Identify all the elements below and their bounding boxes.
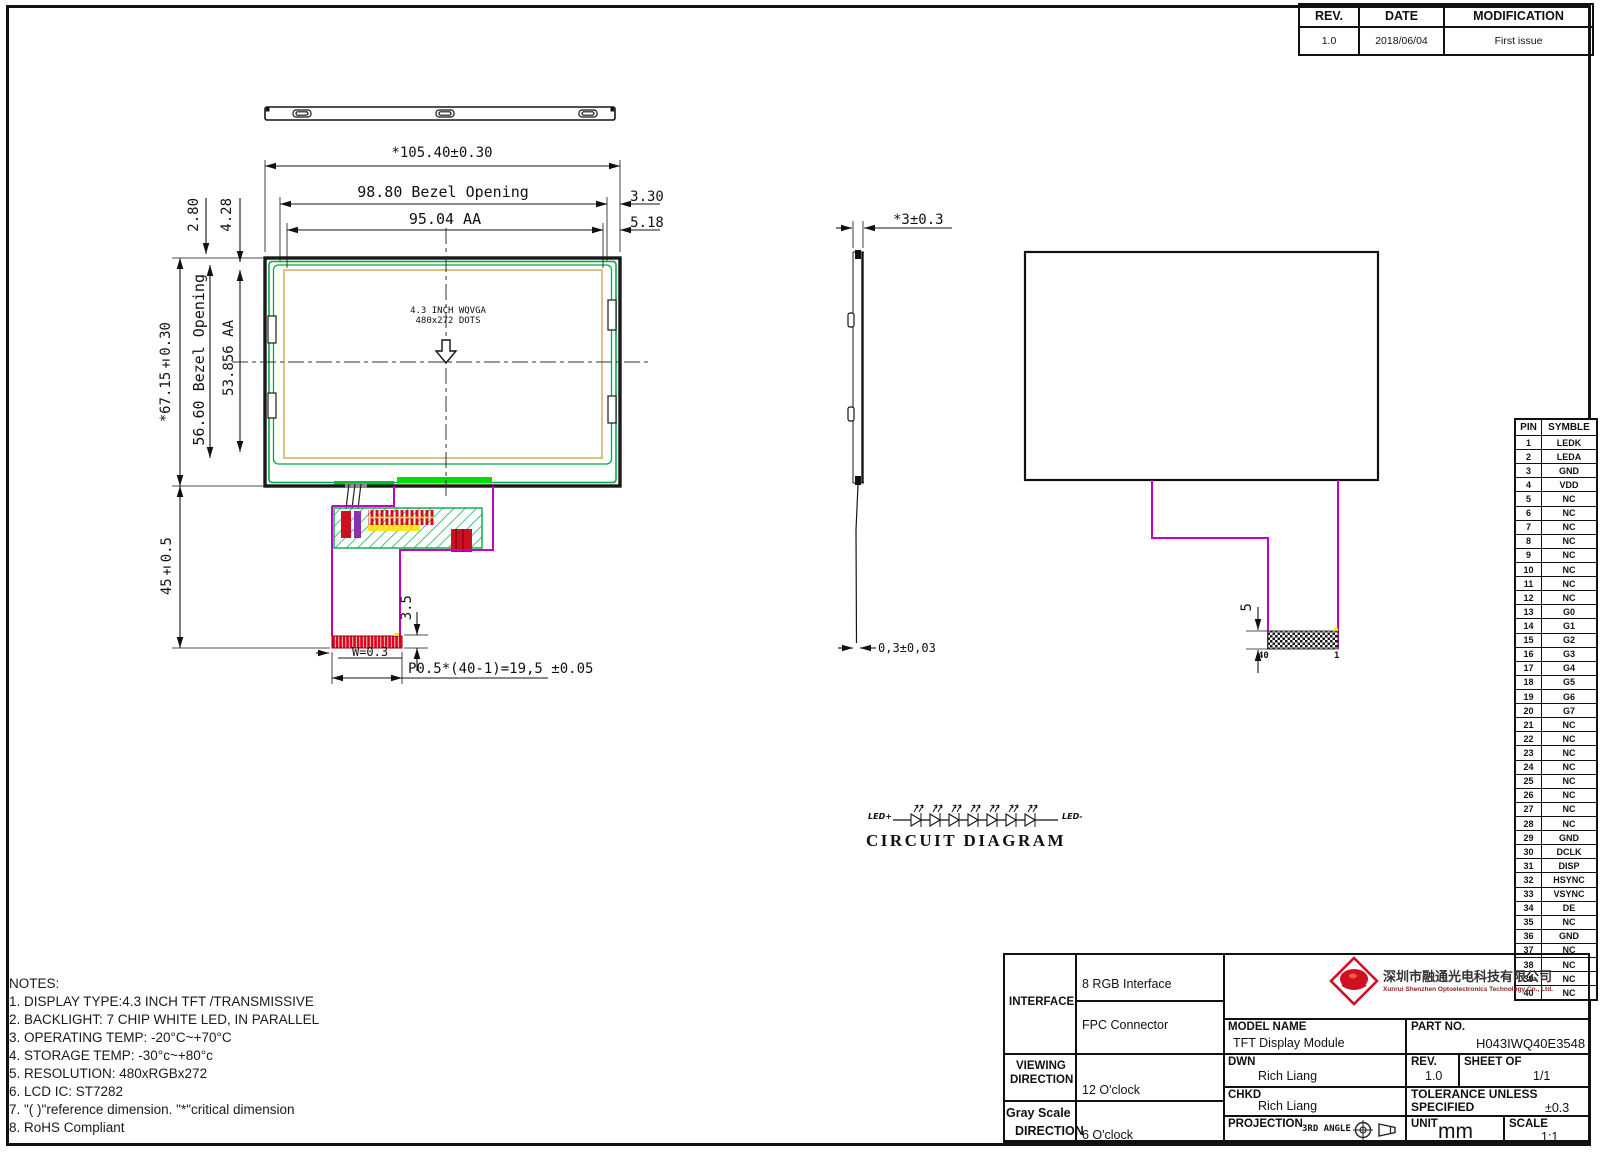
pin-row: 30DCLK bbox=[1516, 844, 1596, 858]
pin-row: 11NC bbox=[1516, 576, 1596, 590]
circuit-diagram-title: CIRCUIT DIAGRAM bbox=[866, 831, 1066, 851]
scale-value: 1:1 bbox=[1541, 1130, 1558, 1144]
revision-table: REV. DATE MODIFICATION 1.0 2018/06/04 Fi… bbox=[1298, 3, 1594, 56]
pin-number: 8 bbox=[1516, 535, 1542, 548]
interface-value-1: 8 RGB Interface bbox=[1082, 977, 1172, 991]
dim-bezel-width: 98.80 Bezel Opening bbox=[357, 183, 529, 201]
pin-number: 5 bbox=[1516, 492, 1542, 505]
pin-number: 20 bbox=[1516, 704, 1542, 717]
symble-col-header: SYMBLE bbox=[1542, 420, 1596, 435]
rev-value: 1.0 bbox=[1300, 28, 1360, 54]
pin-row: 28NC bbox=[1516, 816, 1596, 830]
pin-number: 1 bbox=[1516, 436, 1542, 449]
company-logo bbox=[1328, 955, 1380, 1007]
dim-fpc-tail: 3.5 bbox=[399, 595, 415, 620]
led-icon bbox=[930, 814, 940, 826]
pin-number: 26 bbox=[1516, 789, 1542, 802]
pin-symbol: VSYNC bbox=[1542, 888, 1596, 901]
pin-symbol: VDD bbox=[1542, 478, 1596, 491]
pin-symbol: G1 bbox=[1542, 619, 1596, 632]
pin-number: 30 bbox=[1516, 845, 1542, 858]
pin-row: 22NC bbox=[1516, 731, 1596, 745]
unit-label: UNIT bbox=[1411, 1118, 1438, 1130]
pin-row: 36GND bbox=[1516, 929, 1596, 943]
pin-number: 11 bbox=[1516, 577, 1542, 590]
dim-left-top: 2.80 bbox=[186, 198, 202, 232]
pin-symbol: G7 bbox=[1542, 704, 1596, 717]
pin-row: 23NC bbox=[1516, 745, 1596, 759]
pin-row: 27NC bbox=[1516, 802, 1596, 816]
pin-number: 25 bbox=[1516, 775, 1542, 788]
third-angle-projection-icon bbox=[1352, 1119, 1398, 1141]
tolerance-label-2: SPECIFIED bbox=[1411, 1100, 1474, 1114]
date-header: DATE bbox=[1360, 5, 1445, 28]
modification-value: First issue bbox=[1445, 28, 1592, 54]
interface-label: INTERFACE bbox=[1009, 996, 1074, 1008]
note-item: 7. "( )"reference dimension. "*"critical… bbox=[9, 1102, 319, 1120]
pin-row: 33VSYNC bbox=[1516, 887, 1596, 901]
pin-row: 9NC bbox=[1516, 548, 1596, 562]
tb-line bbox=[1003, 1053, 1590, 1055]
front-view bbox=[232, 228, 652, 500]
pin-row: 17G4 bbox=[1516, 661, 1596, 675]
pin-number: 22 bbox=[1516, 732, 1542, 745]
pin-symbol: NC bbox=[1542, 817, 1596, 830]
tb-line bbox=[1223, 953, 1225, 1146]
pin-number: 19 bbox=[1516, 690, 1542, 703]
part-no-value: H043IWQ40E3548 bbox=[1476, 1036, 1585, 1051]
tb-line bbox=[1075, 1000, 1225, 1002]
part-no-label: PART NO. bbox=[1411, 1021, 1465, 1033]
pin-row: 16G3 bbox=[1516, 647, 1596, 661]
dim-aa-width: 95.04 AA bbox=[409, 210, 481, 228]
chkd-label: CHKD bbox=[1228, 1089, 1261, 1101]
dim-right-top: 3.30 bbox=[630, 189, 664, 205]
led-icon bbox=[987, 814, 997, 826]
pin-number: 15 bbox=[1516, 634, 1542, 647]
pin-symbol: G5 bbox=[1542, 676, 1596, 689]
pin-symbol: LEDA bbox=[1542, 450, 1596, 463]
pin-row: 13G0 bbox=[1516, 604, 1596, 618]
model-name-value: TFT Display Module bbox=[1233, 1036, 1345, 1050]
dwn-label: DWN bbox=[1228, 1056, 1255, 1068]
pin-number: 36 bbox=[1516, 930, 1542, 943]
pin-number: 21 bbox=[1516, 718, 1542, 731]
tb-line bbox=[1003, 1100, 1225, 1102]
pin-row: 1LEDK bbox=[1516, 435, 1596, 449]
pin-symbol: NC bbox=[1542, 775, 1596, 788]
pin-number: 29 bbox=[1516, 831, 1542, 844]
back-pin-right-label: 1 bbox=[1334, 651, 1339, 661]
pin-symbol: NC bbox=[1542, 803, 1596, 816]
pin-number: 9 bbox=[1516, 549, 1542, 562]
tb-line bbox=[1223, 1115, 1590, 1117]
note-item: 4. STORAGE TEMP: -30°c~+80°c bbox=[9, 1048, 319, 1066]
pin-row: 31DISP bbox=[1516, 858, 1596, 872]
pin-number: 13 bbox=[1516, 605, 1542, 618]
gray-scale-label-1: Gray Scale bbox=[1006, 1106, 1071, 1120]
note-item: 2. BACKLIGHT: 7 CHIP WHITE LED, IN PARAL… bbox=[9, 1012, 319, 1030]
led-icon bbox=[1025, 814, 1035, 826]
pin-number: 3 bbox=[1516, 464, 1542, 477]
circuit-diagram bbox=[893, 805, 1058, 827]
notes-title: NOTES: bbox=[9, 976, 319, 994]
interface-value-2: FPC Connector bbox=[1082, 1018, 1168, 1032]
pin-table-header: PIN SYMBLE bbox=[1516, 420, 1596, 435]
pin-symbol: NC bbox=[1542, 916, 1596, 929]
aa-label-line1: 4.3 INCH WQVGA bbox=[410, 306, 486, 316]
dim-aa-height: 53.856 AA bbox=[221, 320, 237, 396]
led-symbols bbox=[911, 805, 1037, 827]
pin-symbol: DCLK bbox=[1542, 845, 1596, 858]
gray-scale-label-2: DIRECTION bbox=[1015, 1124, 1084, 1138]
dim-bezel-height: 56.60 Bezel Opening bbox=[190, 274, 208, 446]
tb-line bbox=[1223, 1018, 1590, 1020]
pin-symbol: GND bbox=[1542, 930, 1596, 943]
led-icon bbox=[949, 814, 959, 826]
pin-symbol: LEDK bbox=[1542, 436, 1596, 449]
date-value: 2018/06/04 bbox=[1360, 28, 1445, 54]
pin-number: 7 bbox=[1516, 521, 1542, 534]
viewing-direction-label-2: DIRECTION bbox=[1010, 1074, 1073, 1086]
pin-symbol: HSYNC bbox=[1542, 873, 1596, 886]
dim-width-total: *105.40±0.30 bbox=[391, 145, 492, 161]
pin-symbol: NC bbox=[1542, 507, 1596, 520]
rev-header: REV. bbox=[1300, 5, 1360, 28]
pin-symbol: G3 bbox=[1542, 648, 1596, 661]
pin-row: 14G1 bbox=[1516, 618, 1596, 632]
dim-fpc-width: W=0.3 bbox=[352, 645, 388, 659]
fpc-front bbox=[332, 484, 493, 648]
pin-row: 12NC bbox=[1516, 590, 1596, 604]
pin-symbol: NC bbox=[1542, 789, 1596, 802]
pin-row: 3GND bbox=[1516, 463, 1596, 477]
top-view bbox=[265, 107, 615, 120]
pin-row: 25NC bbox=[1516, 774, 1596, 788]
tolerance-value: ±0.3 bbox=[1545, 1101, 1569, 1115]
dim-height-total: *67.15±0.30 bbox=[158, 322, 174, 422]
pin-number: 35 bbox=[1516, 916, 1542, 929]
pin-symbol: GND bbox=[1542, 464, 1596, 477]
pin-row: 2LEDA bbox=[1516, 449, 1596, 463]
pin-symbol: NC bbox=[1542, 535, 1596, 548]
pin-row: 32HSYNC bbox=[1516, 872, 1596, 886]
pin-row: 7NC bbox=[1516, 520, 1596, 534]
modification-header: MODIFICATION bbox=[1445, 5, 1592, 28]
dim-fpc-thickness: 0,3±0,03 bbox=[878, 641, 936, 655]
led-minus-label: LED- bbox=[1062, 812, 1083, 821]
pin-number: 4 bbox=[1516, 478, 1542, 491]
pin-row: 29GND bbox=[1516, 830, 1596, 844]
pin-symbol: DISP bbox=[1542, 859, 1596, 872]
pin-symbol: NC bbox=[1542, 732, 1596, 745]
pin-row: 15G2 bbox=[1516, 633, 1596, 647]
back-view bbox=[1025, 252, 1378, 673]
pin-row: 21NC bbox=[1516, 717, 1596, 731]
dwn-value: Rich Liang bbox=[1258, 1069, 1317, 1083]
note-item: 8. RoHS Compliant bbox=[9, 1120, 319, 1138]
tb-line bbox=[1075, 953, 1077, 1146]
dim-fpc-pitch: P0.5*(40-1)=19,5 ±0.05 bbox=[408, 661, 593, 677]
pin-row: 18G5 bbox=[1516, 675, 1596, 689]
pin-number: 12 bbox=[1516, 591, 1542, 604]
dim-fpc-length: 45±0.5 bbox=[159, 537, 175, 595]
pin-number: 16 bbox=[1516, 648, 1542, 661]
pin-symbol: NC bbox=[1542, 746, 1596, 759]
notes-block: NOTES: 1. DISPLAY TYPE:4.3 INCH TFT /TRA… bbox=[9, 976, 319, 1138]
pin-number: 14 bbox=[1516, 619, 1542, 632]
pin-number: 18 bbox=[1516, 676, 1542, 689]
tb-line bbox=[1405, 1018, 1407, 1146]
back-pin-left-label: 40 bbox=[1258, 651, 1269, 661]
pin-number: 31 bbox=[1516, 859, 1542, 872]
viewing-direction-value: 12 O'clock bbox=[1082, 1083, 1140, 1097]
pin-symbol: NC bbox=[1542, 549, 1596, 562]
pin-number: 23 bbox=[1516, 746, 1542, 759]
pin-symbol: NC bbox=[1542, 577, 1596, 590]
pin-symbol: NC bbox=[1542, 761, 1596, 774]
drawing-sheet: 4.3 INCH WQVGA 480x272 DOTS *105.40±0.30… bbox=[0, 0, 1600, 1156]
side-view bbox=[836, 221, 952, 648]
led-icon bbox=[1006, 814, 1016, 826]
chkd-value: Rich Liang bbox=[1258, 1099, 1317, 1113]
dim-left-top2: 4.28 bbox=[219, 198, 235, 232]
pin-row: 4VDD bbox=[1516, 477, 1596, 491]
viewing-direction-label-1: VIEWING bbox=[1016, 1060, 1066, 1072]
pin-number: 2 bbox=[1516, 450, 1542, 463]
rev-value: 1.0 bbox=[1425, 1069, 1442, 1083]
pin-row: 10NC bbox=[1516, 562, 1596, 576]
pin-symbol: G0 bbox=[1542, 605, 1596, 618]
pin-number: 17 bbox=[1516, 662, 1542, 675]
scale-label: SCALE bbox=[1509, 1118, 1548, 1130]
pin-number: 24 bbox=[1516, 761, 1542, 774]
unit-value: mm bbox=[1438, 1120, 1473, 1144]
tb-line bbox=[1458, 1053, 1460, 1086]
pin-symbol: NC bbox=[1542, 492, 1596, 505]
pin-number: 6 bbox=[1516, 507, 1542, 520]
note-item: 1. DISPLAY TYPE:4.3 INCH TFT /TRANSMISSI… bbox=[9, 994, 319, 1012]
pin-symbol: NC bbox=[1542, 563, 1596, 576]
projection-value: 3RD ANGLE bbox=[1302, 1124, 1351, 1134]
pin-row: 8NC bbox=[1516, 534, 1596, 548]
company-name-cn: 深圳市融通光电科技有限公司 bbox=[1383, 966, 1552, 985]
pin-row: 20G7 bbox=[1516, 703, 1596, 717]
pin-number: 33 bbox=[1516, 888, 1542, 901]
pin-row: 5NC bbox=[1516, 491, 1596, 505]
pin-symbol: NC bbox=[1542, 591, 1596, 604]
company-name-en: Xunrui Shenzhen Optoelectronics Technolo… bbox=[1383, 986, 1553, 993]
pin-symbol: DE bbox=[1542, 902, 1596, 915]
tb-line bbox=[1503, 1115, 1505, 1146]
pin-number: 10 bbox=[1516, 563, 1542, 576]
dim-thickness: *3±0.3 bbox=[893, 212, 944, 228]
pin-col-header: PIN bbox=[1516, 420, 1542, 435]
pin-row: 26NC bbox=[1516, 788, 1596, 802]
pin-table: PIN SYMBLE 1LEDK2LEDA3GND4VDD5NC6NC7NC8N… bbox=[1514, 418, 1598, 1001]
dim-right-bottom: 5.18 bbox=[630, 215, 664, 231]
projection-label: PROJECTION bbox=[1228, 1118, 1303, 1130]
pin-number: 28 bbox=[1516, 817, 1542, 830]
pin-symbol: G4 bbox=[1542, 662, 1596, 675]
pin-row: 35NC bbox=[1516, 915, 1596, 929]
aa-label-line2: 480x272 DOTS bbox=[415, 316, 480, 326]
model-name-label: MODEL NAME bbox=[1228, 1021, 1306, 1033]
pin-symbol: NC bbox=[1542, 521, 1596, 534]
pin-symbol: G2 bbox=[1542, 634, 1596, 647]
pin-row: 24NC bbox=[1516, 760, 1596, 774]
pin-row: 6NC bbox=[1516, 506, 1596, 520]
dim-connector-height: 5 bbox=[1239, 603, 1255, 611]
rev-label: REV. bbox=[1411, 1056, 1437, 1068]
pin-number: 32 bbox=[1516, 873, 1542, 886]
led-icon bbox=[968, 814, 978, 826]
note-item: 3. OPERATING TEMP: -20°C~+70°C bbox=[9, 1030, 319, 1048]
pin-symbol: G6 bbox=[1542, 690, 1596, 703]
pin-number: 27 bbox=[1516, 803, 1542, 816]
pin-row: 34DE bbox=[1516, 901, 1596, 915]
sheet-of-value: 1/1 bbox=[1533, 1069, 1550, 1083]
pin-symbol: NC bbox=[1542, 718, 1596, 731]
led-icon bbox=[911, 814, 921, 826]
note-item: 5. RESOLUTION: 480xRGBx272 bbox=[9, 1066, 319, 1084]
sheet-of-label: SHEET OF bbox=[1464, 1056, 1522, 1068]
note-item: 6. LCD IC: ST7282 bbox=[9, 1084, 319, 1102]
led-plus-label: LED+ bbox=[868, 812, 892, 821]
pin-symbol: GND bbox=[1542, 831, 1596, 844]
gray-scale-value: 6 O'clock bbox=[1082, 1128, 1133, 1142]
tolerance-label-1: TOLERANCE UNLESS bbox=[1411, 1087, 1537, 1101]
pin-number: 34 bbox=[1516, 902, 1542, 915]
pin-row: 19G6 bbox=[1516, 689, 1596, 703]
